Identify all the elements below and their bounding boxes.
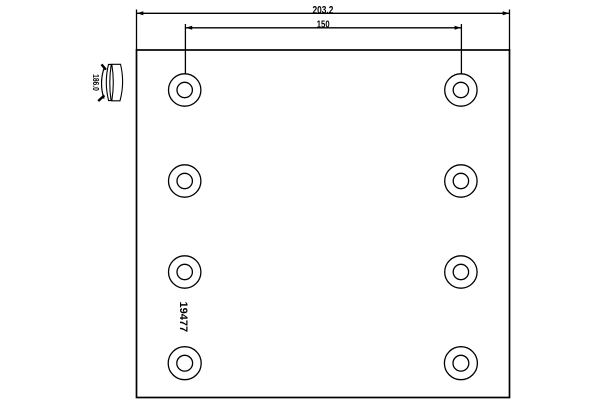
svg-text:19477: 19477 xyxy=(177,302,189,333)
svg-text:203.2: 203.2 xyxy=(312,4,333,16)
svg-text:150: 150 xyxy=(317,18,330,29)
svg-text:186.0: 186.0 xyxy=(91,74,101,91)
